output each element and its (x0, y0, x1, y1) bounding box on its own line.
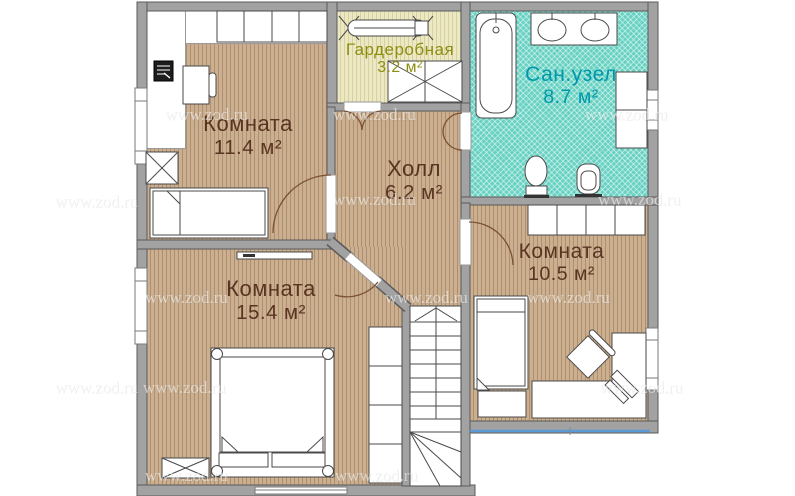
stair-cabinet (369, 327, 402, 483)
double-sink-vanity (531, 13, 617, 45)
room-name: Сан.узел (525, 63, 617, 86)
window-room11-left (135, 88, 147, 164)
room-name: Холл (387, 156, 441, 181)
bathtub (476, 13, 516, 118)
room-name: Комната (203, 111, 293, 136)
single-bed-2 (474, 296, 528, 390)
wall-shelf (237, 252, 312, 259)
room-area: 15.4 м² (196, 302, 346, 325)
room-name: Комната (519, 240, 605, 263)
door-arc-wardrobe-r (362, 111, 381, 130)
label-hall: Холл 6.2 м² (350, 157, 478, 205)
room-area: 6.2 м² (350, 182, 478, 205)
window-room15-left (135, 268, 147, 344)
computer-icon (154, 61, 173, 81)
wall-hall-top-b (381, 103, 461, 111)
floor-plan: Комната 11.4 м² Гардеробная 3.2 м² Сан.у… (0, 0, 795, 496)
room-area: 11.4 м² (173, 137, 323, 160)
staircase (410, 306, 461, 486)
room-area: 8.7 м² (514, 87, 628, 109)
window-bath-right (646, 90, 658, 130)
ironing-board (339, 16, 433, 40)
crossed-box-bench (162, 458, 209, 478)
label-room-15-4: Комната 15.4 м² (196, 277, 346, 325)
door-leaf-wardrobe (344, 102, 381, 112)
door-leaf-room10 (460, 219, 471, 265)
room-area: 10.5 м² (489, 264, 634, 286)
door-leaf-diagonal (348, 256, 379, 283)
wardrobe-4door-2 (528, 205, 645, 235)
label-bathroom: Сан.узел 8.7 м² (514, 63, 628, 108)
desk (183, 66, 209, 104)
wall-stairs-left (402, 306, 410, 486)
wall-top (137, 2, 658, 11)
label-room-10-5: Комната 10.5 м² (489, 240, 634, 285)
label-wardrobe: Гардеробная 3.2 м² (337, 40, 463, 77)
wall-bath-bottom (461, 197, 658, 205)
toilet (524, 156, 549, 198)
room-area: 3.2 м² (337, 59, 463, 77)
room-name: Гардеробная (346, 40, 454, 59)
nightstand (478, 391, 526, 417)
window-room15-bottom (255, 487, 347, 494)
wall-stairs-right-b (461, 265, 470, 486)
wall-room11-room15 (137, 240, 335, 249)
single-bed (150, 188, 268, 238)
desk-chair-2 (565, 329, 616, 380)
wardrobe-4door (217, 11, 327, 42)
room-10-5-furniture (474, 205, 646, 418)
door-leaf-room11 (326, 175, 336, 233)
door-arc-bath-t (443, 113, 462, 132)
door-arc-wardrobe-l (344, 111, 362, 130)
label-room-11-4: Комната 11.4 м² (173, 112, 323, 160)
bidet (575, 164, 602, 197)
door-leaf-bath (460, 112, 471, 150)
room-name: Комната (226, 276, 316, 301)
door-arc-room11 (273, 175, 331, 233)
wall-room11-wardrobe (327, 2, 337, 107)
desk-chair (209, 73, 216, 97)
double-bed (211, 348, 334, 477)
window-room10-right (646, 328, 658, 390)
wall-room11-hall-a (327, 107, 335, 175)
wall-stairs-right-a (461, 203, 470, 219)
door-arc-bath-b (443, 131, 462, 150)
